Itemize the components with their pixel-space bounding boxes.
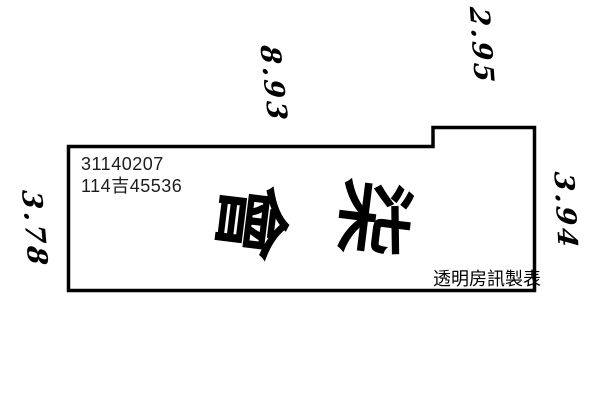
handwritten-char-right: 柒 [330,176,415,261]
publisher-credit: 透明房訊製表 [433,265,541,291]
parcel-outline [0,0,600,402]
registration-number: 31140207 [81,153,182,175]
handwritten-char-left: 會 [208,179,293,264]
dimension-right: 3.94 [547,171,582,251]
parcel-id-block: 31140207 114吉45536 [81,153,182,197]
survey-plan-canvas: 31140207 114吉45536 8.93 2.95 3.94 3.78 會… [0,0,600,402]
dimension-top-right: 2.95 [463,6,500,86]
document-number: 114吉45536 [81,175,182,197]
